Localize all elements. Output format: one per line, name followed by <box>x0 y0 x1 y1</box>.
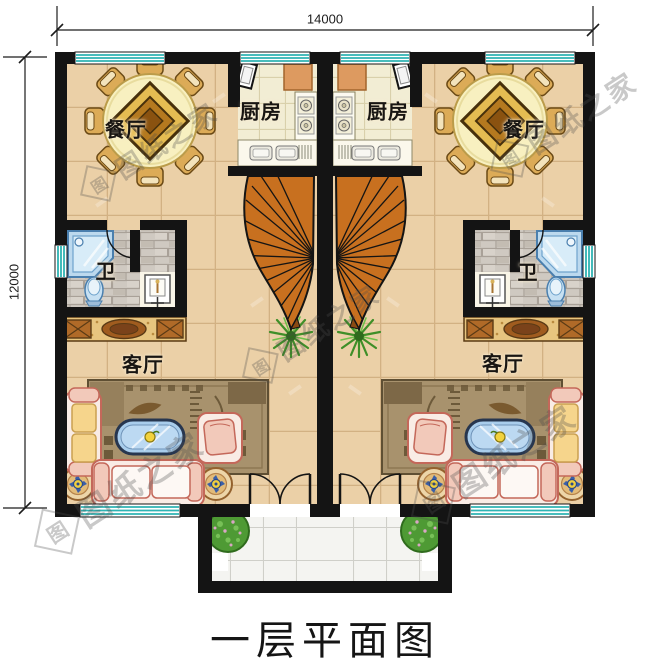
room-label-living-left: 客厅 <box>122 349 164 378</box>
room-label-bath-right: 卫 <box>518 257 539 286</box>
floor-plan-page: 14000 12000 餐厅 餐厅 厨房 厨房 卫 卫 客厅 客厅 图 图纸之家… <box>0 0 650 660</box>
room-label-living-right: 客厅 <box>482 348 524 377</box>
dimension-height-label: 12000 <box>7 264 22 300</box>
room-label-kitchen-left: 厨房 <box>240 96 282 125</box>
room-label-kitchen-right: 厨房 <box>367 96 409 125</box>
room-label-dining-left: 餐厅 <box>105 114 147 143</box>
page-title: 一层平面图 <box>210 608 440 660</box>
room-label-bath-left: 卫 <box>96 256 117 285</box>
floor-plan-drawing <box>0 0 650 660</box>
dimension-width-label: 14000 <box>307 12 343 27</box>
room-label-dining-right: 餐厅 <box>503 114 545 143</box>
